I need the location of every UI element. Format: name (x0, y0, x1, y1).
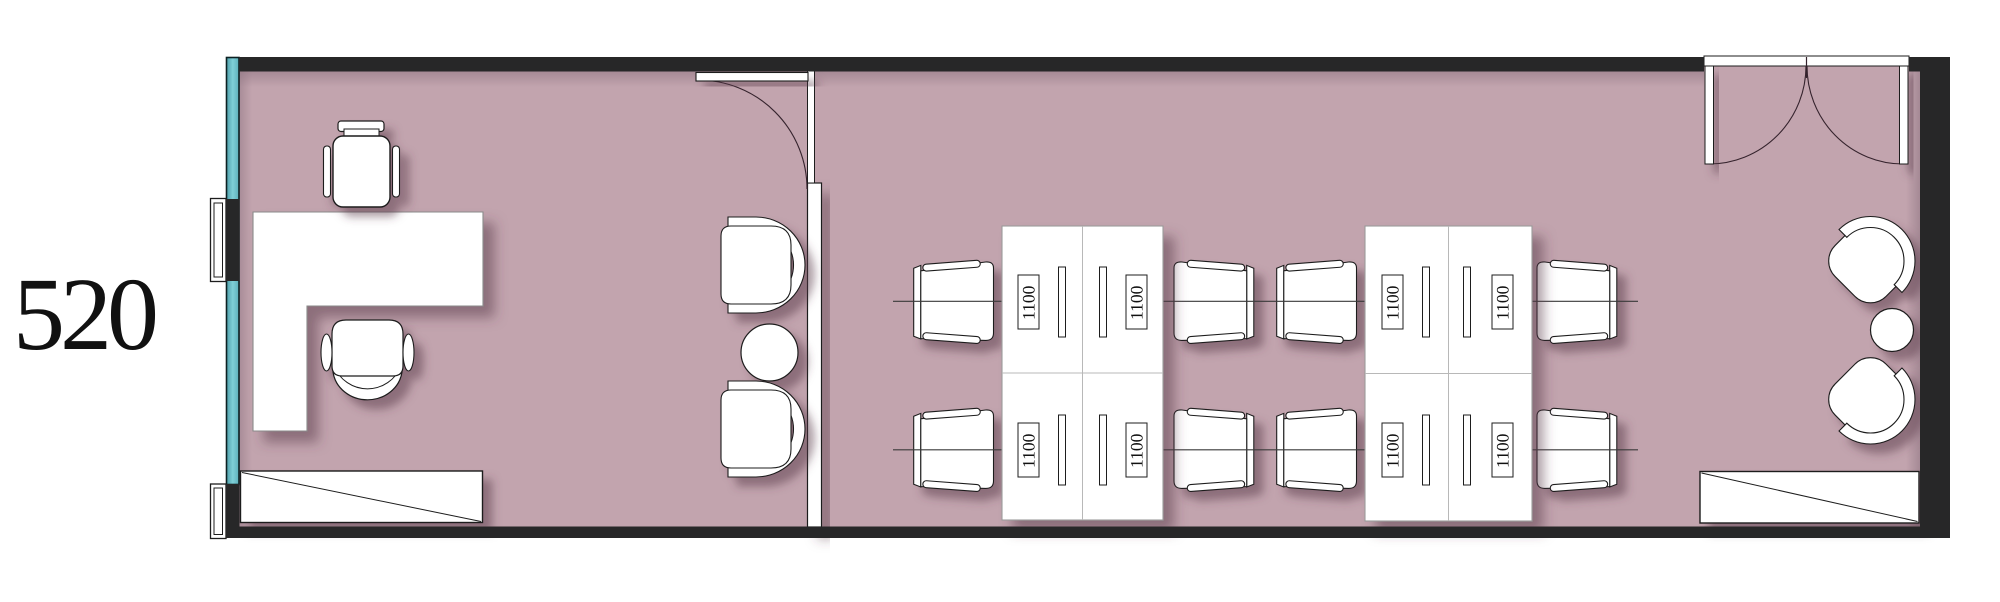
svg-text:1100: 1100 (1127, 433, 1147, 468)
svg-text:1100: 1100 (1493, 285, 1513, 320)
svg-text:1100: 1100 (1127, 285, 1147, 320)
svg-text:1100: 1100 (1493, 433, 1513, 468)
svg-text:1100: 1100 (1019, 285, 1039, 320)
svg-text:1100: 1100 (1019, 433, 1039, 468)
svg-text:1100: 1100 (1383, 433, 1403, 468)
svg-text:1100: 1100 (1383, 285, 1403, 320)
svg-text:520: 520 (13, 257, 156, 372)
